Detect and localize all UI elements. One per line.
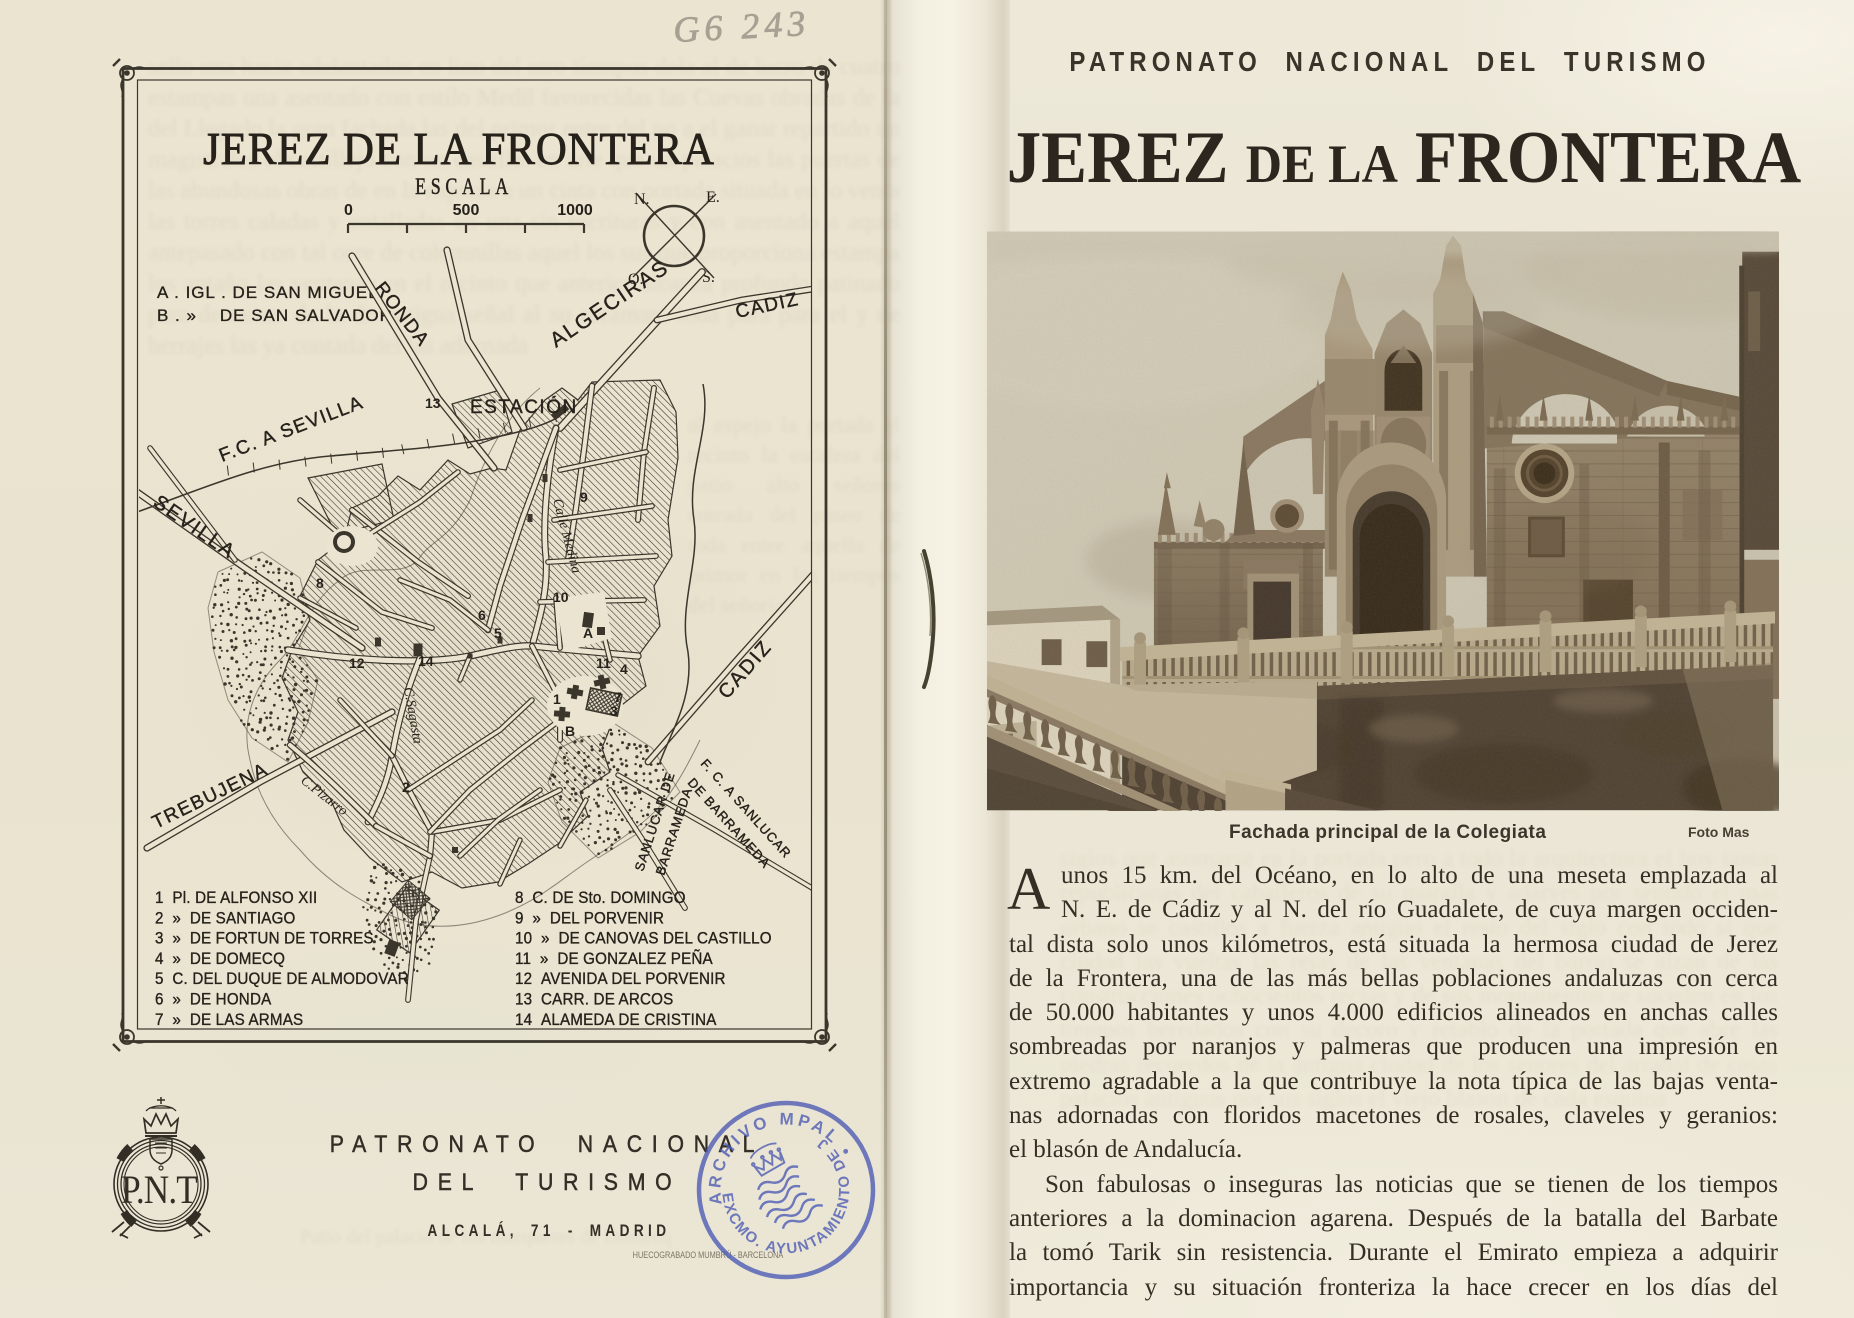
svg-text:14: 14	[418, 653, 434, 669]
svg-text:10 » DE CANOVAS DEL CASTILLO: 10 » DE CANOVAS DEL CASTILLO	[515, 930, 772, 948]
svg-text:14 ALAMEDA DE CRISTINA: 14 ALAMEDA DE CRISTINA	[515, 1011, 717, 1029]
svg-text:E.: E.	[706, 189, 720, 206]
svg-text:6 » DE HONDA: 6 » DE HONDA	[155, 991, 272, 1009]
svg-text:1000: 1000	[557, 202, 593, 219]
svg-text:0: 0	[344, 202, 353, 219]
svg-text:ESCALA: ESCALA	[415, 175, 513, 200]
svg-text:A: A	[583, 625, 593, 641]
svg-text:12 AVENIDA DEL PORVENIR: 12 AVENIDA DEL PORVENIR	[515, 971, 726, 989]
svg-text:7: 7	[614, 689, 622, 705]
svg-text:B: B	[565, 723, 575, 739]
svg-text:2 » DE SANTIAGO: 2 » DE SANTIAGO	[155, 910, 296, 928]
svg-text:4: 4	[620, 661, 628, 677]
svg-text:1: 1	[553, 691, 561, 707]
svg-text:12: 12	[349, 655, 365, 671]
svg-text:8: 8	[316, 575, 324, 591]
svg-text:G6 243: G6 243	[672, 3, 811, 50]
svg-text:9 » DEL PORVENIR: 9 » DEL PORVENIR	[515, 910, 664, 928]
svg-text:13 CARR. DE ARCOS: 13 CARR. DE ARCOS	[515, 991, 673, 1009]
svg-text:A . IGL . DE SAN MIGUEL: A . IGL . DE SAN MIGUEL	[157, 283, 379, 302]
svg-text:ALCALÁ, 71 - MADRID: ALCALÁ, 71 - MADRID	[428, 1222, 671, 1241]
svg-text:9: 9	[580, 489, 588, 505]
svg-text:5: 5	[494, 625, 502, 641]
svg-text:4 » DE DOMECQ: 4 » DE DOMECQ	[155, 950, 285, 968]
svg-text:1 Pl. DE ALFONSO XII: 1 Pl. DE ALFONSO XII	[155, 889, 317, 907]
svg-text:2: 2	[402, 779, 410, 795]
svg-text:3: 3	[610, 703, 618, 719]
svg-text:6: 6	[478, 607, 486, 623]
svg-text:5 C. DEL DUQUE DE ALMODOVAR: 5 C. DEL DUQUE DE ALMODOVAR	[155, 971, 409, 989]
svg-text:JEREZ DE LA FRONTERA: JEREZ DE LA FRONTERA	[203, 125, 715, 174]
svg-text:7 » DE LAS ARMAS: 7 » DE LAS ARMAS	[155, 1011, 303, 1029]
svg-text:TREBUJENA: TREBUJENA	[149, 759, 272, 833]
svg-text:3 » DE FORTUN DE TORRES: 3 » DE FORTUN DE TORRES	[155, 930, 374, 948]
svg-text:ALGECIRAS: ALGECIRAS	[546, 256, 673, 352]
svg-text:PATRONATO NACIONAL: PATRONATO NACIONAL	[330, 1130, 764, 1158]
svg-text:DEL TURISMO: DEL TURISMO	[413, 1168, 682, 1196]
svg-text:B . » DE SAN SALVADOR: B . » DE SAN SALVADOR	[157, 306, 393, 325]
svg-text:N.: N.	[634, 191, 650, 208]
svg-text:P.N.T: P.N.T	[121, 1168, 198, 1213]
svg-text:11: 11	[596, 655, 611, 671]
svg-text:10: 10	[553, 589, 569, 605]
svg-text:8 C. DE Sto. DOMINGO: 8 C. DE Sto. DOMINGO	[515, 889, 686, 907]
svg-text:13: 13	[425, 395, 441, 411]
svg-text:11 » DE GONZALEZ PEÑA: 11 » DE GONZALEZ PEÑA	[515, 947, 713, 968]
svg-text:ESTACIÓN: ESTACIÓN	[470, 396, 578, 418]
svg-text:500: 500	[453, 202, 480, 219]
